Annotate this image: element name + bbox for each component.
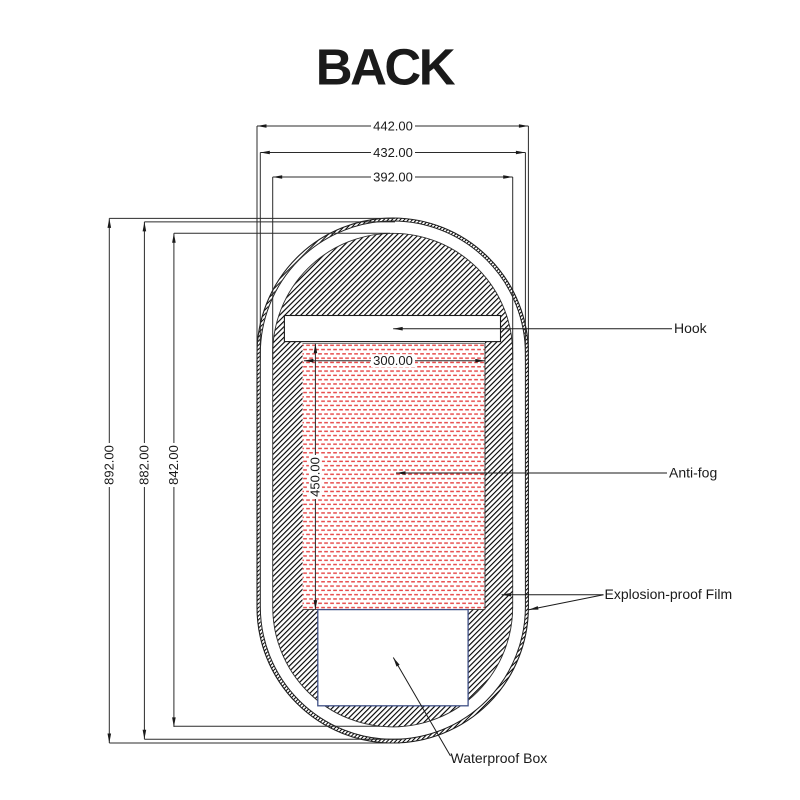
svg-text:Explosion-proof Film: Explosion-proof Film: [605, 586, 733, 602]
svg-text:392.00: 392.00: [373, 170, 413, 185]
svg-text:450.00: 450.00: [308, 457, 323, 497]
svg-text:432.00: 432.00: [373, 145, 413, 160]
svg-text:892.00: 892.00: [102, 445, 117, 485]
svg-text:BACK: BACK: [316, 39, 456, 96]
svg-text:882.00: 882.00: [137, 445, 152, 485]
svg-text:842.00: 842.00: [166, 445, 181, 485]
svg-text:300.00: 300.00: [373, 353, 413, 368]
svg-text:Anti-fog: Anti-fog: [669, 465, 717, 481]
svg-text:442.00: 442.00: [373, 119, 413, 134]
svg-text:Waterproof Box: Waterproof Box: [451, 750, 548, 766]
svg-text:Hook: Hook: [674, 320, 708, 336]
